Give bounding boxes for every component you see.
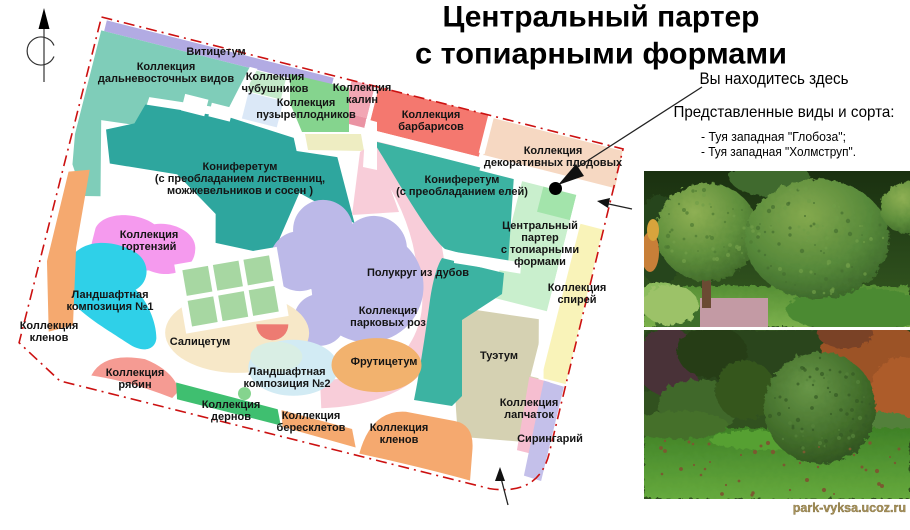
svg-text:Коллекциягортензий: Коллекциягортензий [120,229,179,253]
svg-text:Сирингарий: Сирингарий [517,433,583,445]
svg-text:Представленные виды и сорта:: Представленные виды и сорта: [674,104,895,121]
svg-text:Коллекциялапчаток: Коллекциялапчаток [500,397,559,421]
svg-text:Коллекциячубушников: Коллекциячубушников [242,71,309,95]
svg-text:Коллекцияпарковых роз: Коллекцияпарковых роз [350,305,426,329]
svg-text:- Туя западная "Холмструп".: - Туя западная "Холмструп". [701,145,856,159]
svg-text:Полукруг из дубов: Полукруг из дубов [367,267,469,279]
svg-text:Ландшафтнаякомпозиция №1: Ландшафтнаякомпозиция №1 [67,289,154,313]
svg-text:Салицетум: Салицетум [170,336,230,348]
svg-text:park-vyksa.ucoz.ru: park-vyksa.ucoz.ru [793,501,906,515]
svg-text:- Туя западная "Глобоза";: - Туя западная "Глобоза"; [701,130,846,144]
svg-text:Коллекцияспирей: Коллекцияспирей [548,282,607,306]
svg-text:Ландшафтнаякомпозиция №2: Ландшафтнаякомпозиция №2 [244,366,331,390]
svg-text:Фрутицетум: Фрутицетум [351,356,418,368]
svg-text:Центральный партер: Центральный партер [443,1,760,34]
svg-text:Вы находитесь здесь: Вы находитесь здесь [700,70,849,88]
svg-text:Коллекциябарбарисов: Коллекциябарбарисов [398,109,464,133]
svg-text:Туэтум: Туэтум [480,350,518,362]
svg-text:Витицетум: Витицетум [186,46,245,58]
svg-text:с топиарными формами: с топиарными формами [415,38,787,71]
svg-text:Коллекциябересклетов: Коллекциябересклетов [277,410,346,434]
